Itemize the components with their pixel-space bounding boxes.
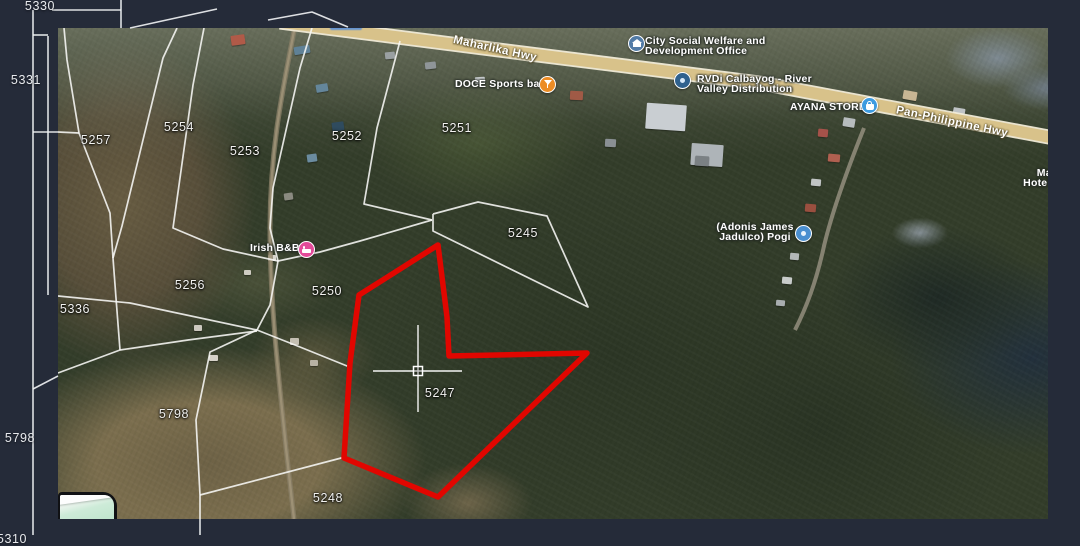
margin-parcel-number-label: 5331 (11, 73, 41, 87)
margin-parcel-number-label: 5798 (5, 431, 35, 445)
parcel-boundary-line-margin (33, 376, 58, 389)
margin-parcel-number-label: 5330 (25, 0, 55, 13)
parcel-lines-margin-svg (0, 0, 1080, 535)
gis-app-window: 5254525352525251524552575256525053365247… (0, 0, 1080, 535)
parcel-boundary-line-margin (130, 9, 217, 28)
margin-parcel-number-label: 5310 (0, 532, 27, 546)
parcel-boundary-line-margin (268, 12, 348, 27)
